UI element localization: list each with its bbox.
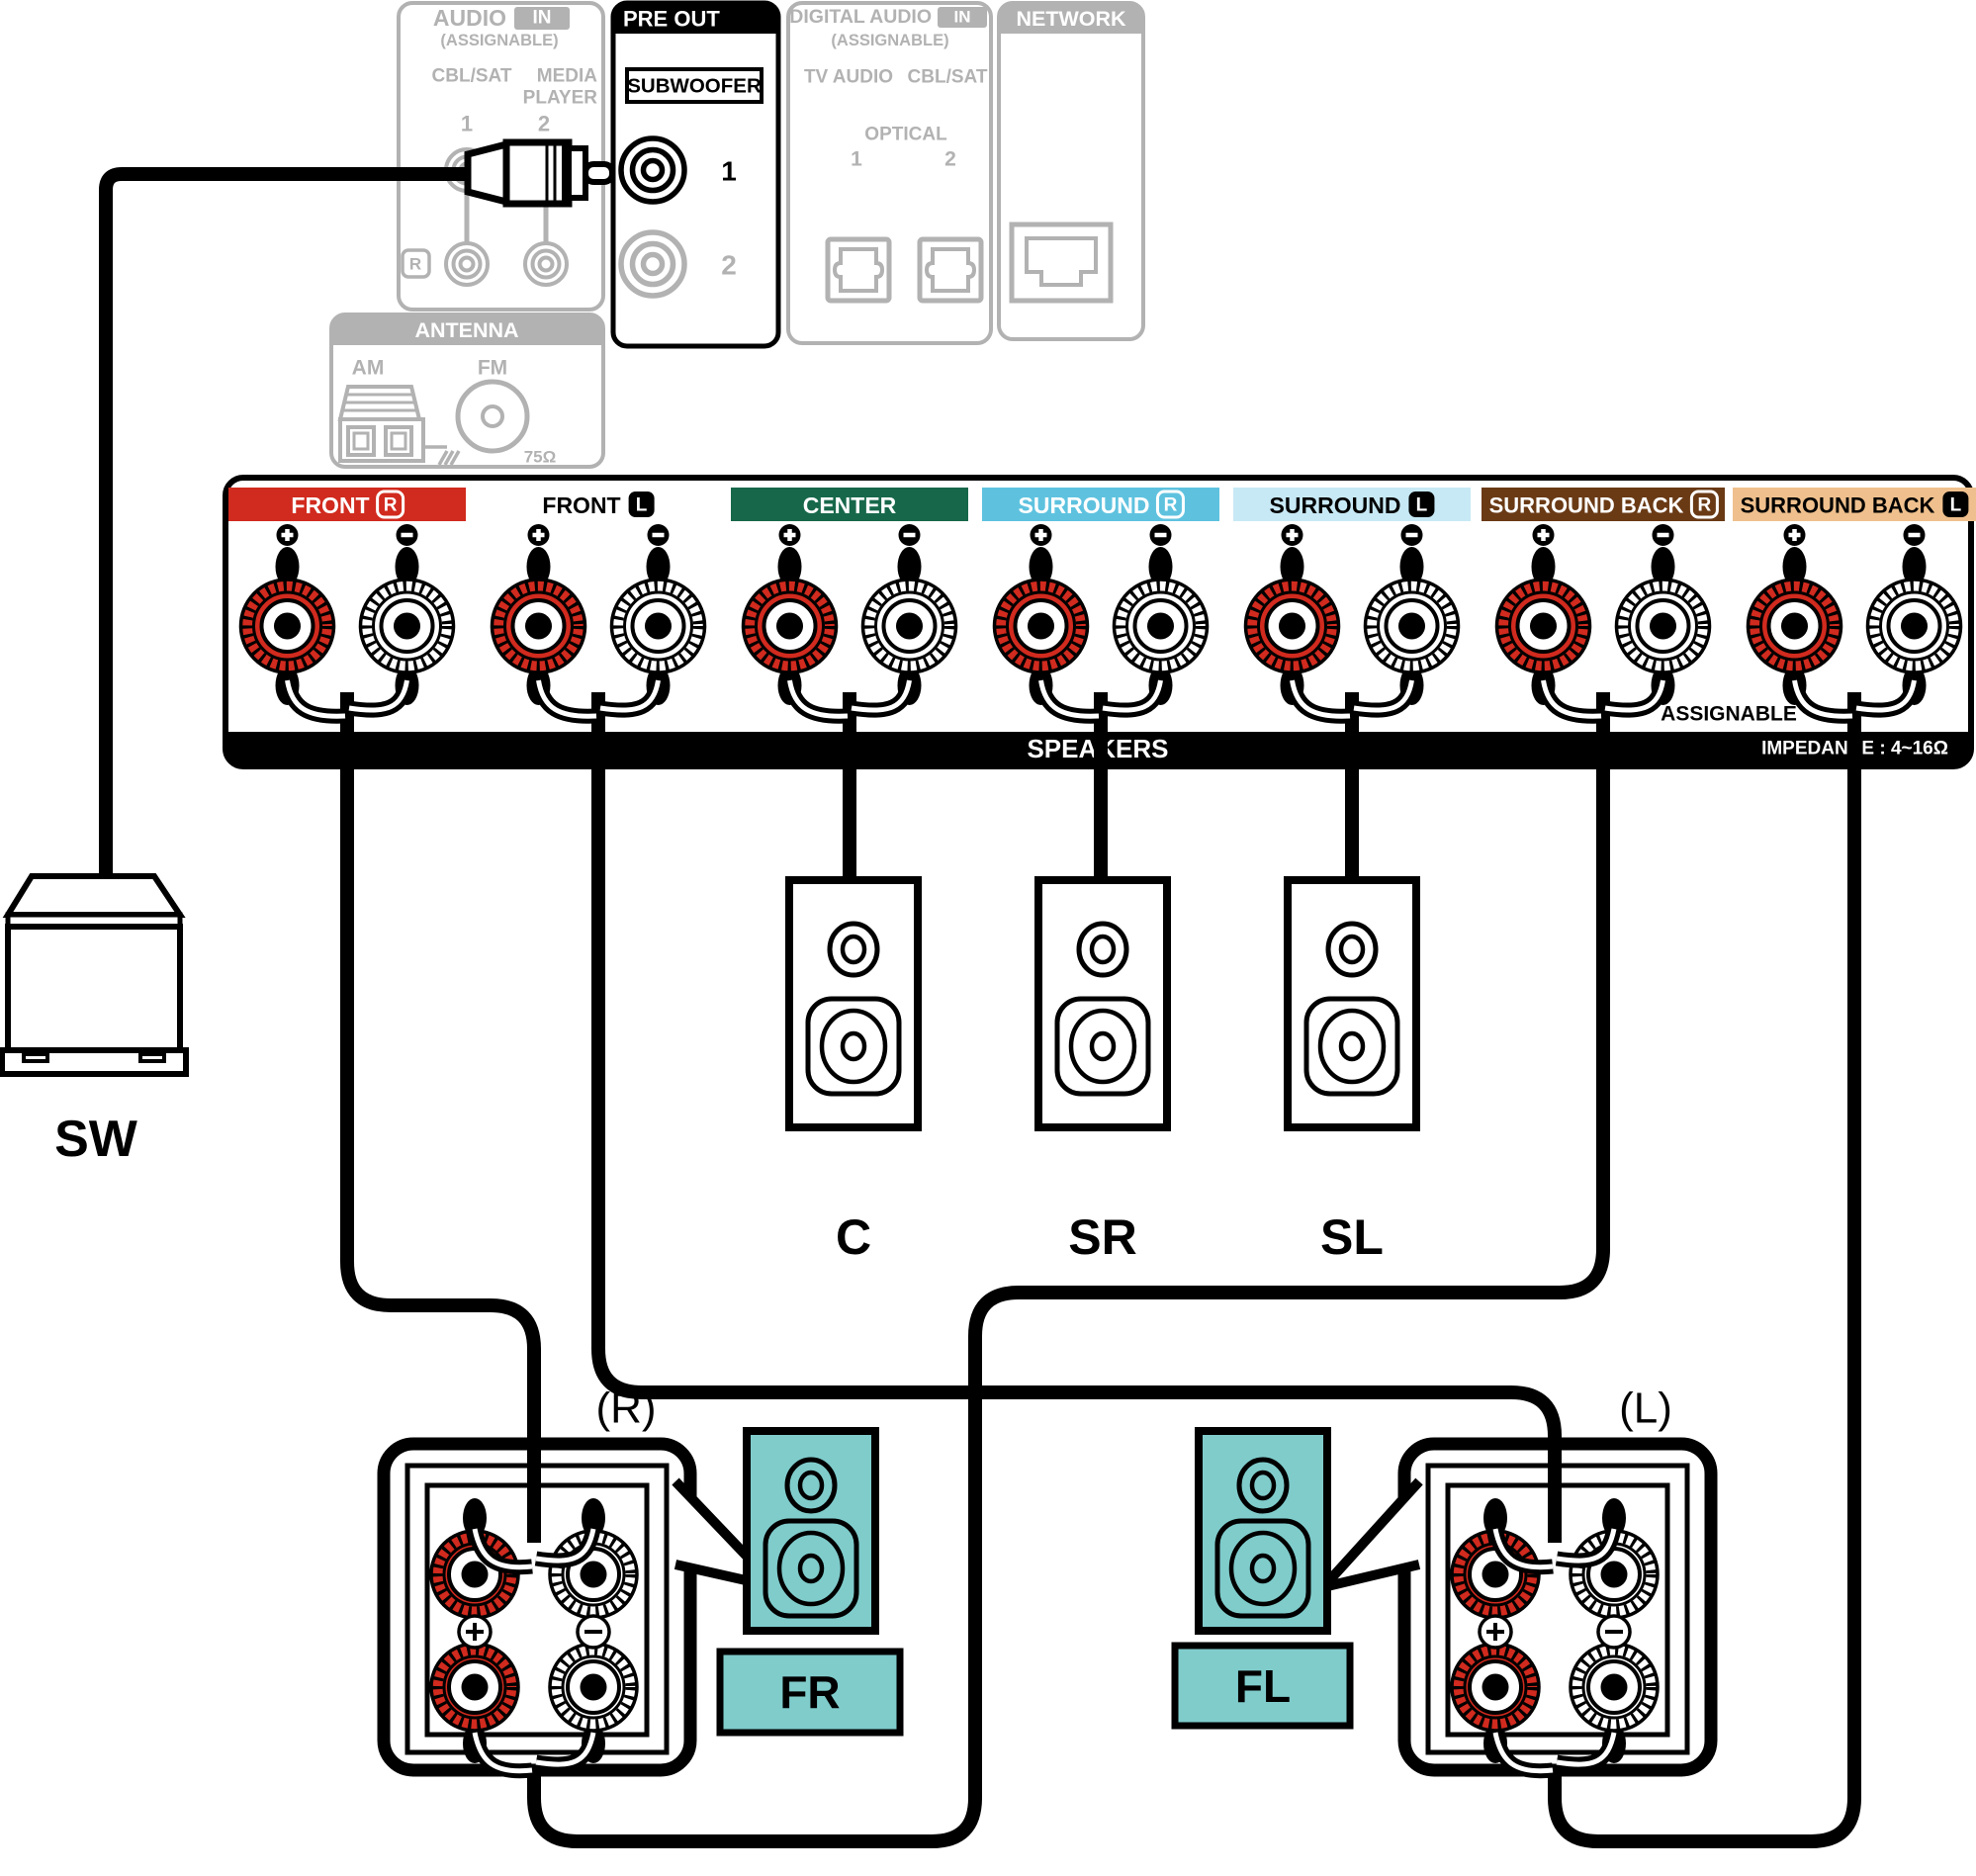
terminal-label-text: FRONT: [542, 492, 620, 518]
surround-right-speaker: [1038, 880, 1167, 1127]
surround-right-speaker-tag: SR: [1068, 1209, 1136, 1265]
terminal-label-surround-back-r: SURROUND BACKR: [1482, 488, 1725, 521]
audio-num-1: 1: [461, 112, 473, 136]
left-channel-tag: (L): [1619, 1385, 1672, 1433]
front-left-tag: FL: [1235, 1660, 1291, 1712]
terminal-label-center: CENTER: [731, 488, 968, 521]
front-right-speaker: [747, 1431, 875, 1631]
right-channel-tag: (R): [595, 1385, 656, 1433]
front-left-speaker: [1199, 1431, 1327, 1631]
antenna-am-label: AM: [352, 357, 385, 380]
minus-mark: [397, 524, 418, 546]
speaker-cabinet: [1038, 880, 1167, 1127]
terminal-label-surround-back-l: SURROUND BACKL: [1733, 488, 1976, 521]
network-panel: [999, 3, 1143, 339]
front-right-tag: FR: [779, 1666, 840, 1718]
callout-tail: [1323, 1481, 1419, 1587]
minus-mark: [1150, 524, 1172, 546]
digital-num-1: 1: [851, 148, 862, 171]
audio-num-2: 2: [538, 112, 550, 136]
center-speaker: [789, 880, 918, 1127]
audio-row-r: R: [409, 255, 421, 274]
terminal-label-text: FRONT: [291, 492, 369, 518]
minus-mark: [648, 524, 670, 546]
terminal-label-text: SURROUND: [1270, 492, 1401, 518]
subwoofer-box: [2, 876, 186, 1074]
subwoofer-tag: SW: [54, 1111, 138, 1168]
minus-mark: [1401, 524, 1423, 546]
surround-left-speaker-tag: SL: [1320, 1209, 1384, 1265]
terminal-label-text: SURROUND: [1019, 492, 1150, 518]
subwoofer-label: SUBWOOFER: [627, 75, 762, 98]
audio-in-badge-text: IN: [533, 8, 552, 29]
audio-assignable: (ASSIGNABLE): [440, 32, 558, 49]
plus-mark: [528, 524, 550, 546]
speaker-connection-diagram: AUDIO IN (ASSIGNABLE) CBL/SAT MEDIA PLAY…: [0, 0, 1976, 1876]
rca-plug-pin: [585, 164, 612, 182]
channel-badge-letter: R: [384, 495, 398, 516]
subwoofer-foot: [140, 1054, 164, 1061]
subwoofer-foot: [24, 1054, 47, 1061]
antenna-title: ANTENNA: [414, 318, 518, 342]
plus-mark: [1031, 524, 1052, 546]
digital-assignable: (ASSIGNABLE): [831, 32, 948, 49]
digital-optical-label: OPTICAL: [864, 125, 947, 145]
minus-mark: [1653, 524, 1674, 546]
antenna-fm-label: FM: [478, 357, 507, 380]
digital-title: DIGITAL AUDIO: [789, 6, 932, 28]
pre-out-title: PRE OUT: [623, 7, 720, 32]
center-speaker-tag: C: [836, 1209, 871, 1265]
terminal-label-surround-r: SURROUNDR: [982, 488, 1219, 521]
channel-badge-letter: L: [636, 495, 648, 516]
surround-left-speaker: [1288, 880, 1416, 1127]
terminal-label-surround-l: SURROUNDL: [1233, 488, 1471, 521]
plus-mark: [1784, 524, 1806, 546]
plus-mark: [277, 524, 299, 546]
plus-mark: [1282, 524, 1303, 546]
terminal-label-text: CENTER: [803, 492, 897, 518]
bi-amp-terminal-plates: [384, 1444, 1711, 1770]
digital-cblsat-label: CBL/SAT: [908, 67, 988, 88]
preout-jack1-num: 1: [721, 156, 737, 187]
channel-badge-letter: L: [1950, 495, 1962, 516]
audio-player-label: PLAYER: [523, 88, 598, 109]
digital-badge-text: IN: [954, 8, 971, 27]
network-title: NETWORK: [1016, 7, 1126, 31]
digital-num-2: 2: [944, 148, 956, 171]
wire-front-right: [347, 692, 534, 1543]
minus-mark: [899, 524, 921, 546]
terminal-label-front-r: FRONTR: [228, 488, 466, 521]
audio-cblsat-label: CBL/SAT: [432, 66, 512, 87]
diagram-canvas: AUDIO IN (ASSIGNABLE) CBL/SAT MEDIA PLAY…: [0, 0, 1976, 1876]
channel-badge-letter: L: [1416, 495, 1428, 516]
plus-mark: [1533, 524, 1555, 546]
minus-mark: [1904, 524, 1926, 546]
channel-badge-letter: R: [1698, 495, 1712, 516]
audio-in-title: AUDIO: [433, 5, 506, 31]
preout-jack2-num: 2: [721, 250, 737, 281]
bi-amp-plate-left: [1323, 1444, 1711, 1770]
terminal-label-front-l: FRONTL: [542, 491, 654, 518]
speaker-cabinet: [1288, 880, 1416, 1127]
terminal-label-text: SURROUND BACK: [1489, 493, 1684, 518]
assignable-label: ASSIGNABLE: [1661, 703, 1797, 726]
digital-tvaudio-label: TV AUDIO: [804, 67, 893, 88]
channel-badge-letter: R: [1164, 495, 1178, 516]
terminal-label-text: SURROUND BACK: [1741, 493, 1935, 518]
antenna-75ohm-label: 75Ω: [524, 448, 557, 467]
audio-media-label: MEDIA: [537, 66, 598, 87]
speaker-cabinet: [789, 880, 918, 1127]
plus-mark: [779, 524, 801, 546]
